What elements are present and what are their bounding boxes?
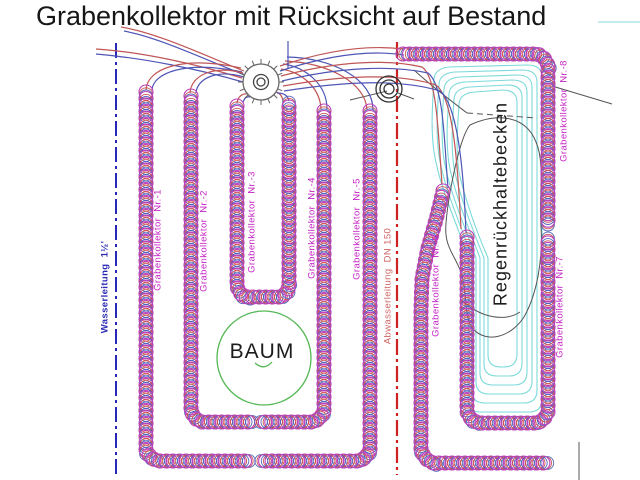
label-grabenkollektor-6: Grabenkollektor Nr.-6 [431,235,442,337]
site-plan-canvas [0,0,640,480]
label-grabenkollektor-3: Grabenkollektor Nr.-3 [247,171,258,273]
label-abwasserleitung: Abwasserleitung DN 150 [383,228,394,344]
label-wasserleitung: Wasserleitung 1½' [100,241,111,334]
label-grabenkollektor-2: Grabenkollektor Nr.-2 [199,190,210,292]
sewer-manhole [376,76,402,102]
page-title: Grabenkollektor mit Rücksicht auf Bestan… [36,1,546,32]
distributor-shaft [238,59,284,105]
label-grabenkollektor-1: Grabenkollektor Nr.-1 [153,189,164,291]
coil-run-grabenkollektor-3 [230,96,297,305]
basin-contours [432,65,542,412]
site-plan: Grabenkollektor mit Rücksicht auf Bestan… [0,0,640,480]
label-grabenkollektor-4: Grabenkollektor Nr.-4 [307,177,318,279]
label-grabenkollektor-5: Grabenkollektor Nr.-5 [352,178,363,280]
label-grabenkollektor-7: Grabenkollektor Nr.-7 [555,256,566,358]
label-regenrueckhaltebecken: Regenrückhaltebecken [491,102,512,306]
label-baum: BAUM [230,340,295,364]
label-grabenkollektor-8: Grabenkollektor Nr.-8 [559,60,570,162]
